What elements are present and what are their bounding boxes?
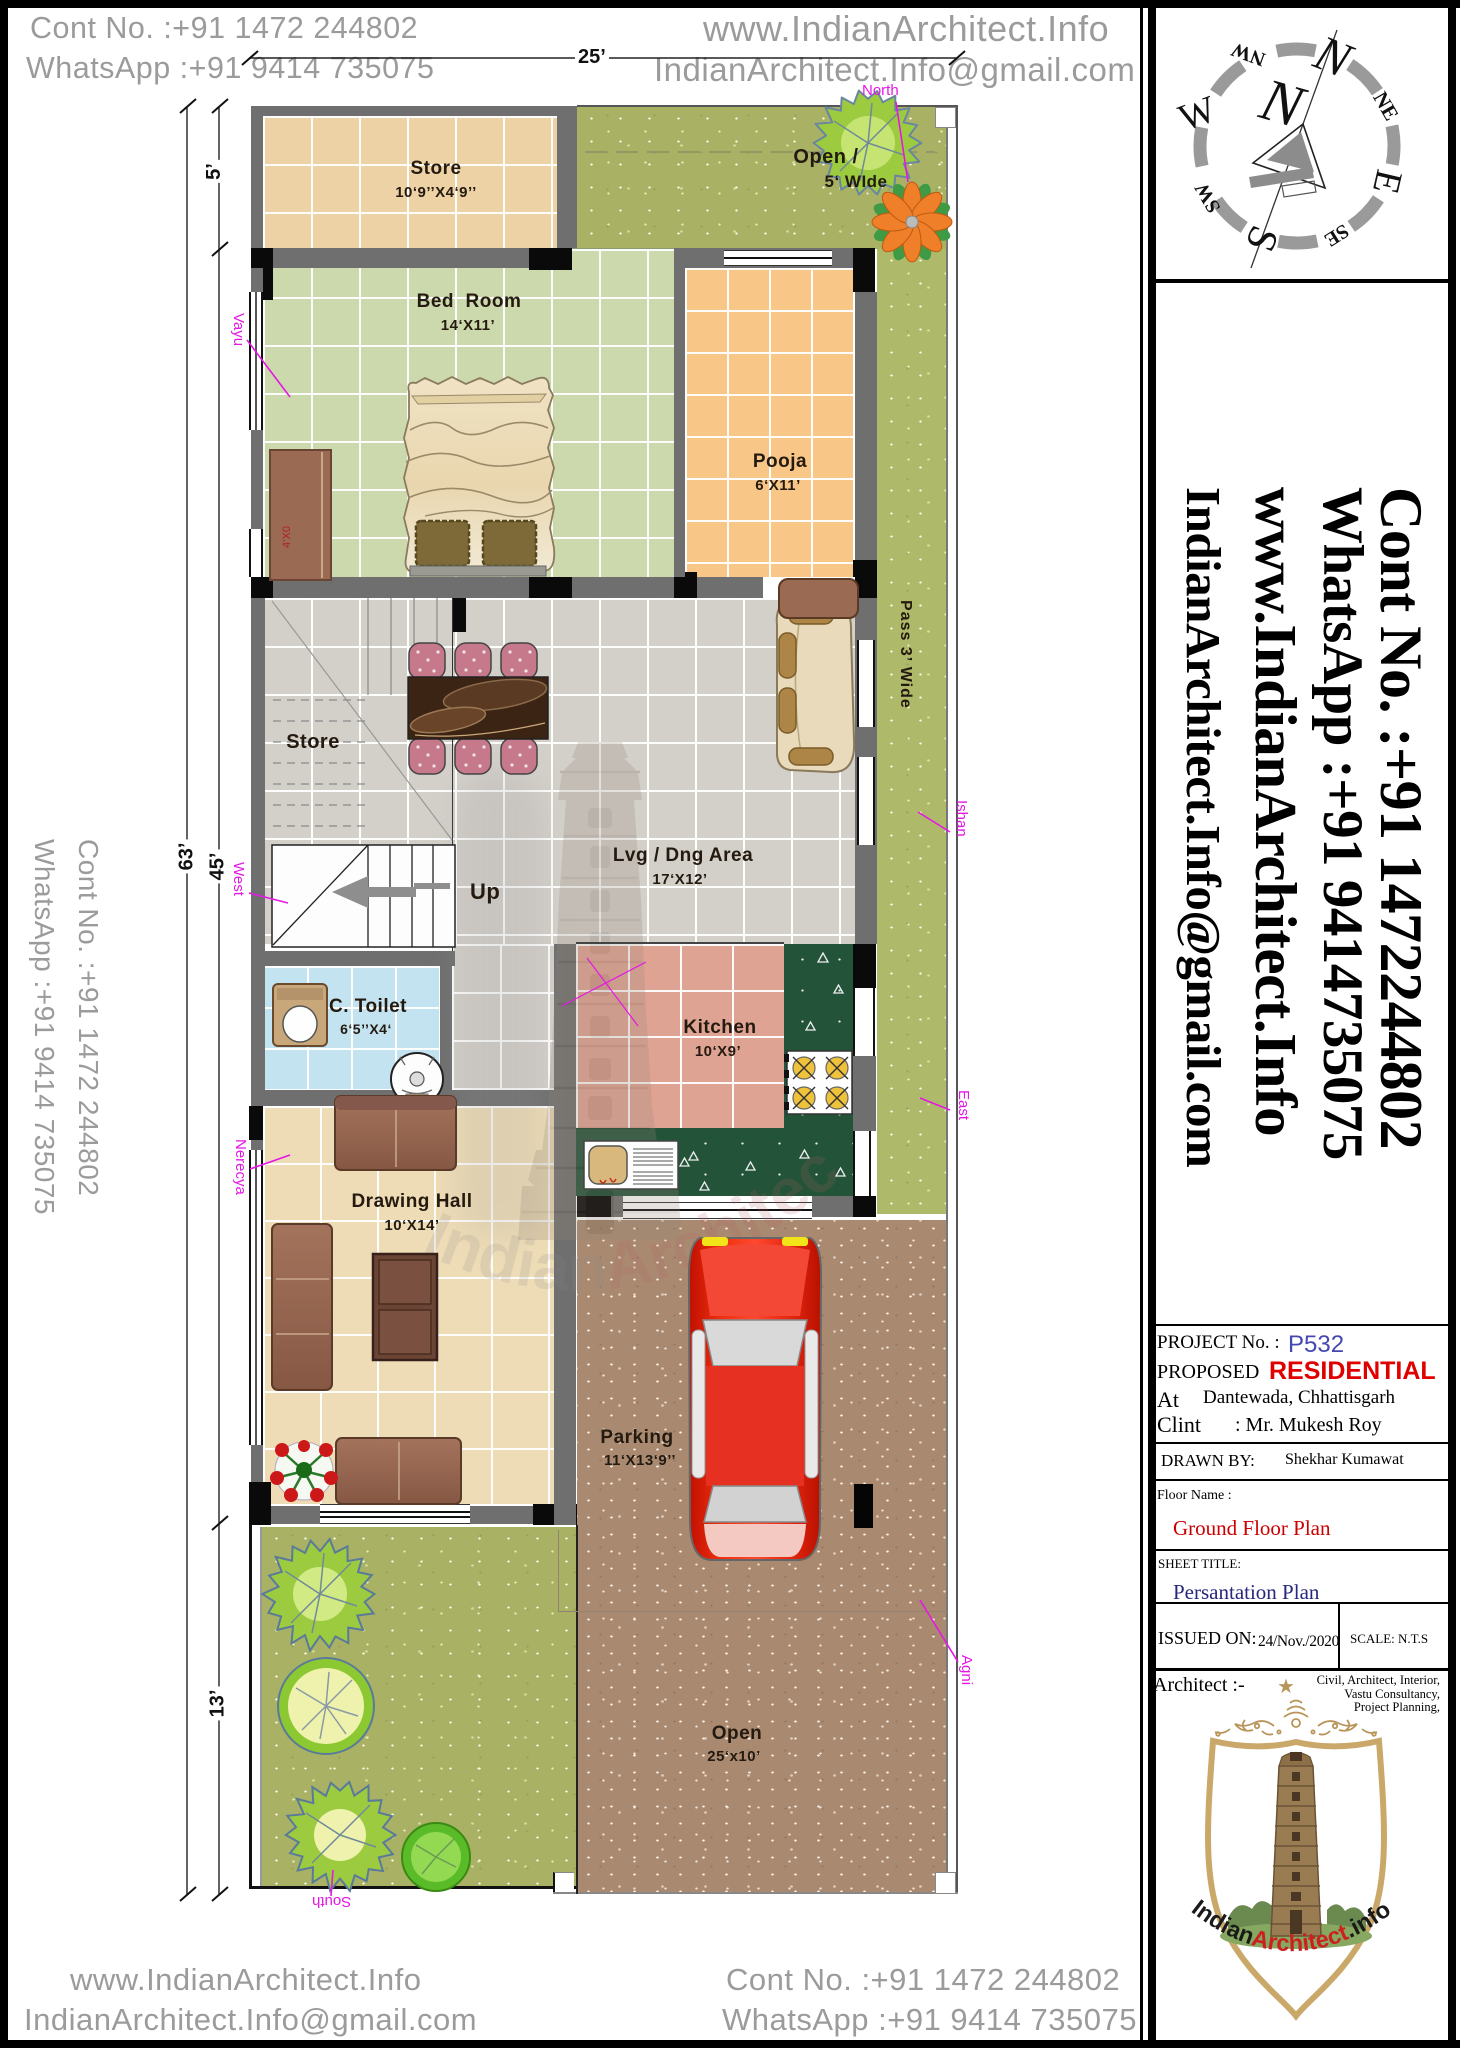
svg-text:E: E (1364, 166, 1410, 198)
svg-text:SE: SE (1320, 219, 1352, 251)
svg-text:W: W (1173, 88, 1221, 140)
svg-text:4‘X0: 4‘X0 (281, 526, 293, 548)
svg-text:S: S (1236, 219, 1287, 258)
svg-text:N: N (1306, 23, 1361, 89)
svg-text:N: N (1253, 65, 1313, 141)
svg-text:★: ★ (1277, 1676, 1295, 1698)
